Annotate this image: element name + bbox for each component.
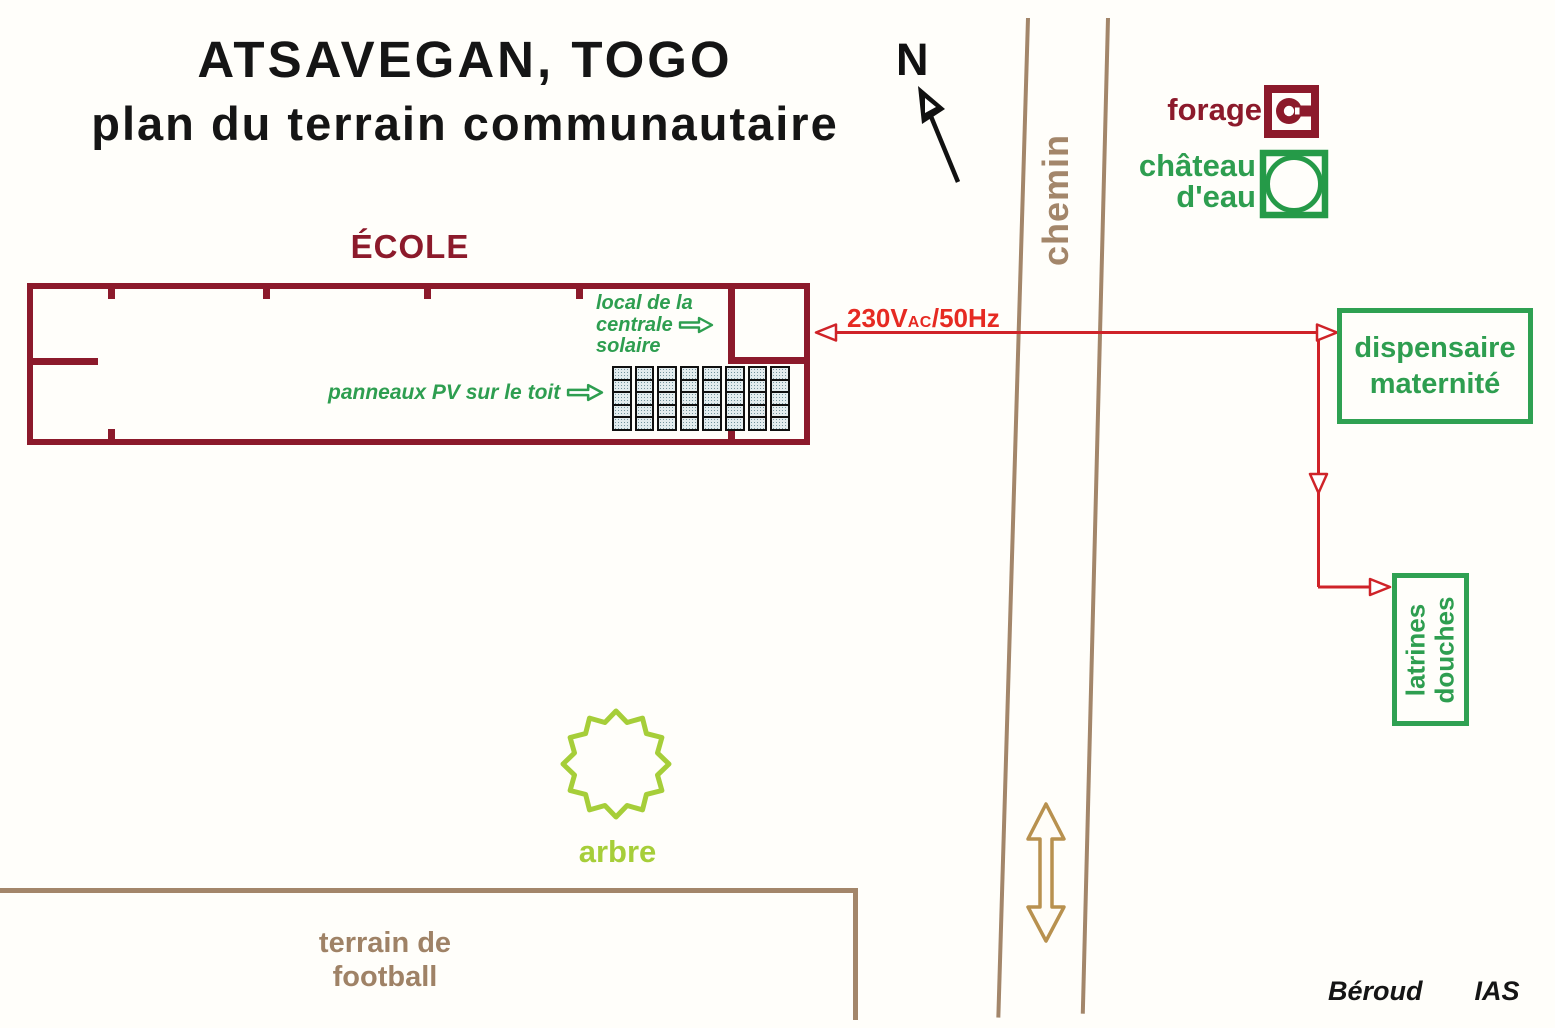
- solar-room-wall-vertical: [728, 289, 735, 360]
- page-title: ATSAVEGAN, TOGO plan du terrain communau…: [10, 30, 920, 152]
- school-interior-wall: [33, 358, 98, 365]
- football-label-line2: football: [295, 960, 475, 994]
- school-door-tick: [108, 289, 115, 299]
- pv-cell: [725, 416, 745, 431]
- pv-column: [612, 366, 632, 431]
- dispensary-label-line1: dispensaire: [1354, 330, 1515, 366]
- arrowhead-left-school: [816, 325, 836, 341]
- pv-cell: [657, 416, 677, 431]
- credit-author: Béroud: [1328, 976, 1423, 1006]
- north-label: N: [896, 34, 929, 86]
- latrines-box: latrines douches: [1392, 573, 1469, 726]
- school-label: ÉCOLE: [320, 228, 500, 266]
- pv-cell: [702, 416, 722, 431]
- pv-cell: [770, 416, 790, 431]
- power-freq: /50Hz: [932, 303, 1000, 333]
- dispensary-box: dispensaire maternité: [1337, 308, 1533, 424]
- title-line2: plan du terrain communautaire: [10, 96, 920, 152]
- football-field-line-right: [853, 888, 858, 1020]
- latrines-label-line2: douches: [1431, 596, 1460, 703]
- title-line1: ATSAVEGAN, TOGO: [10, 30, 920, 90]
- pv-column: [725, 366, 745, 431]
- latrines-label-line1: latrines: [1402, 596, 1431, 703]
- football-field-line-top: [0, 888, 858, 893]
- tree-icon: [558, 706, 674, 822]
- solar-room-note-line2: centrale: [596, 315, 714, 337]
- pv-cell: [748, 416, 768, 431]
- solar-room-note-line1: local de la: [596, 293, 714, 315]
- latrines-label: latrines douches: [1402, 596, 1460, 703]
- arrowhead-right-dispensaire: [1317, 325, 1337, 341]
- road-label: chemin: [1035, 134, 1077, 266]
- solar-room-note: local de la centrale solaire: [596, 293, 714, 358]
- water-tower-label: château d'eau: [1080, 150, 1256, 212]
- pv-panels: [612, 366, 790, 431]
- right-arrow-icon: [565, 383, 605, 402]
- water-tower-label-line2: d'eau: [1080, 181, 1256, 212]
- water-tower-label-line1: château: [1080, 150, 1256, 181]
- pv-column: [748, 366, 768, 431]
- pv-column: [680, 366, 700, 431]
- borehole-label: forage: [1080, 92, 1262, 128]
- football-label: terrain de football: [295, 926, 475, 994]
- arrowhead-right-latrines: [1370, 579, 1390, 595]
- football-label-line1: terrain de: [295, 926, 475, 960]
- tree-label: arbre: [560, 834, 675, 870]
- right-arrow-icon: [678, 316, 714, 334]
- pv-column: [657, 366, 677, 431]
- pv-cell: [635, 416, 655, 431]
- dispensary-label-line2: maternité: [1370, 366, 1501, 402]
- school-door-tick: [576, 289, 583, 299]
- pv-cell: [680, 416, 700, 431]
- water-tower-icon: [1259, 149, 1329, 219]
- pv-column: [770, 366, 790, 431]
- school-door-tick: [108, 429, 115, 439]
- pv-cell: [612, 416, 632, 431]
- power-spec-label: 230VAC/50Hz: [847, 303, 1000, 334]
- credits: BéroudIAS: [1328, 976, 1520, 1007]
- north-arrow-icon: [900, 82, 970, 187]
- power-volts: 230V: [847, 303, 908, 333]
- site-plan: ATSAVEGAN, TOGO plan du terrain communau…: [0, 0, 1555, 1028]
- school-door-tick: [424, 289, 431, 299]
- arrowhead-down-branch: [1310, 474, 1327, 493]
- power-ac: AC: [908, 314, 932, 331]
- borehole-icon: [1263, 84, 1321, 140]
- school-door-tick: [263, 289, 270, 299]
- pv-column: [702, 366, 722, 431]
- solar-room-wall-horizontal: [728, 357, 804, 364]
- credit-org: IAS: [1475, 976, 1520, 1006]
- pv-column: [635, 366, 655, 431]
- solar-room-note-line3: solaire: [596, 336, 714, 358]
- road-two-way-arrow-icon: [1026, 801, 1066, 944]
- pv-note: panneaux PV sur le toit: [328, 381, 605, 405]
